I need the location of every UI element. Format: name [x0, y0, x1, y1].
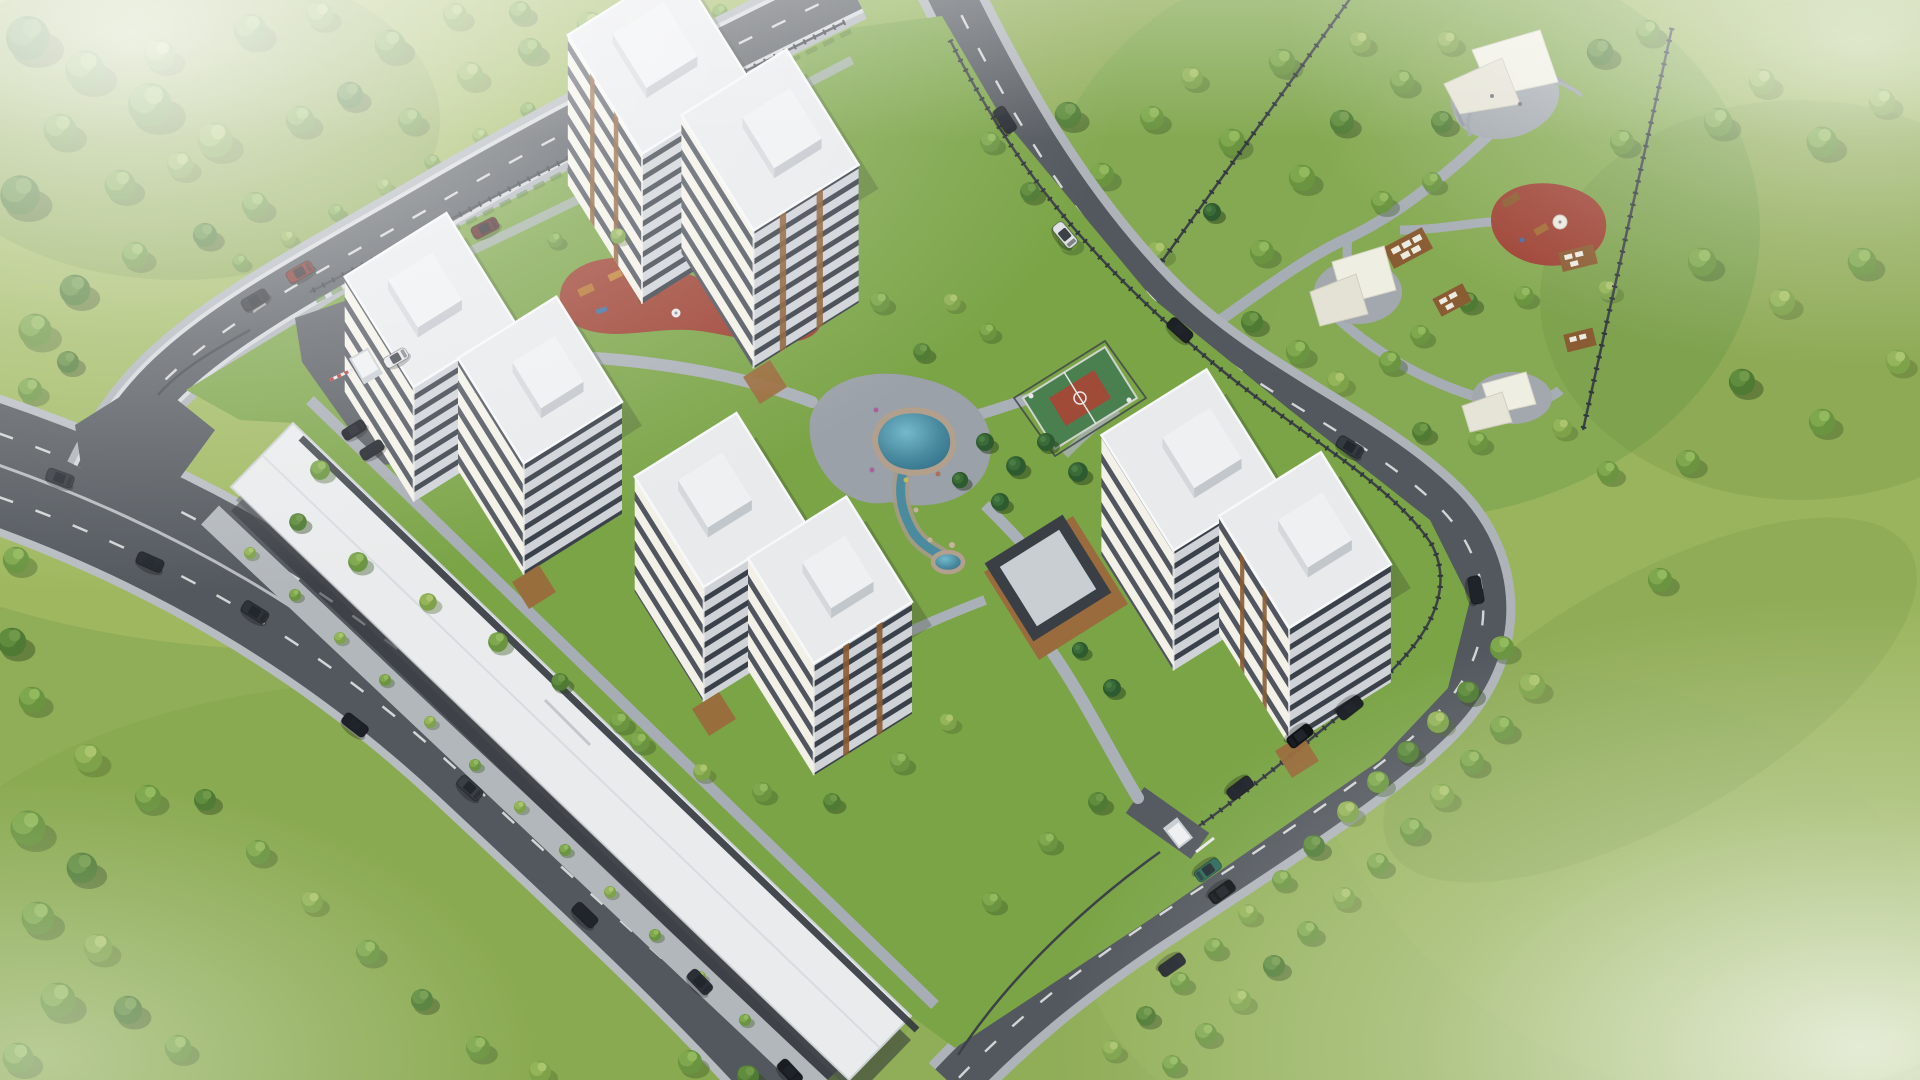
aerial-render-image: Aerial 3D rendering of a gated residenti…: [0, 0, 1920, 1080]
scene-canvas: Aerial 3D rendering of a gated residenti…: [0, 0, 1920, 1080]
atmospheric-haze: [0, 0, 1920, 1080]
